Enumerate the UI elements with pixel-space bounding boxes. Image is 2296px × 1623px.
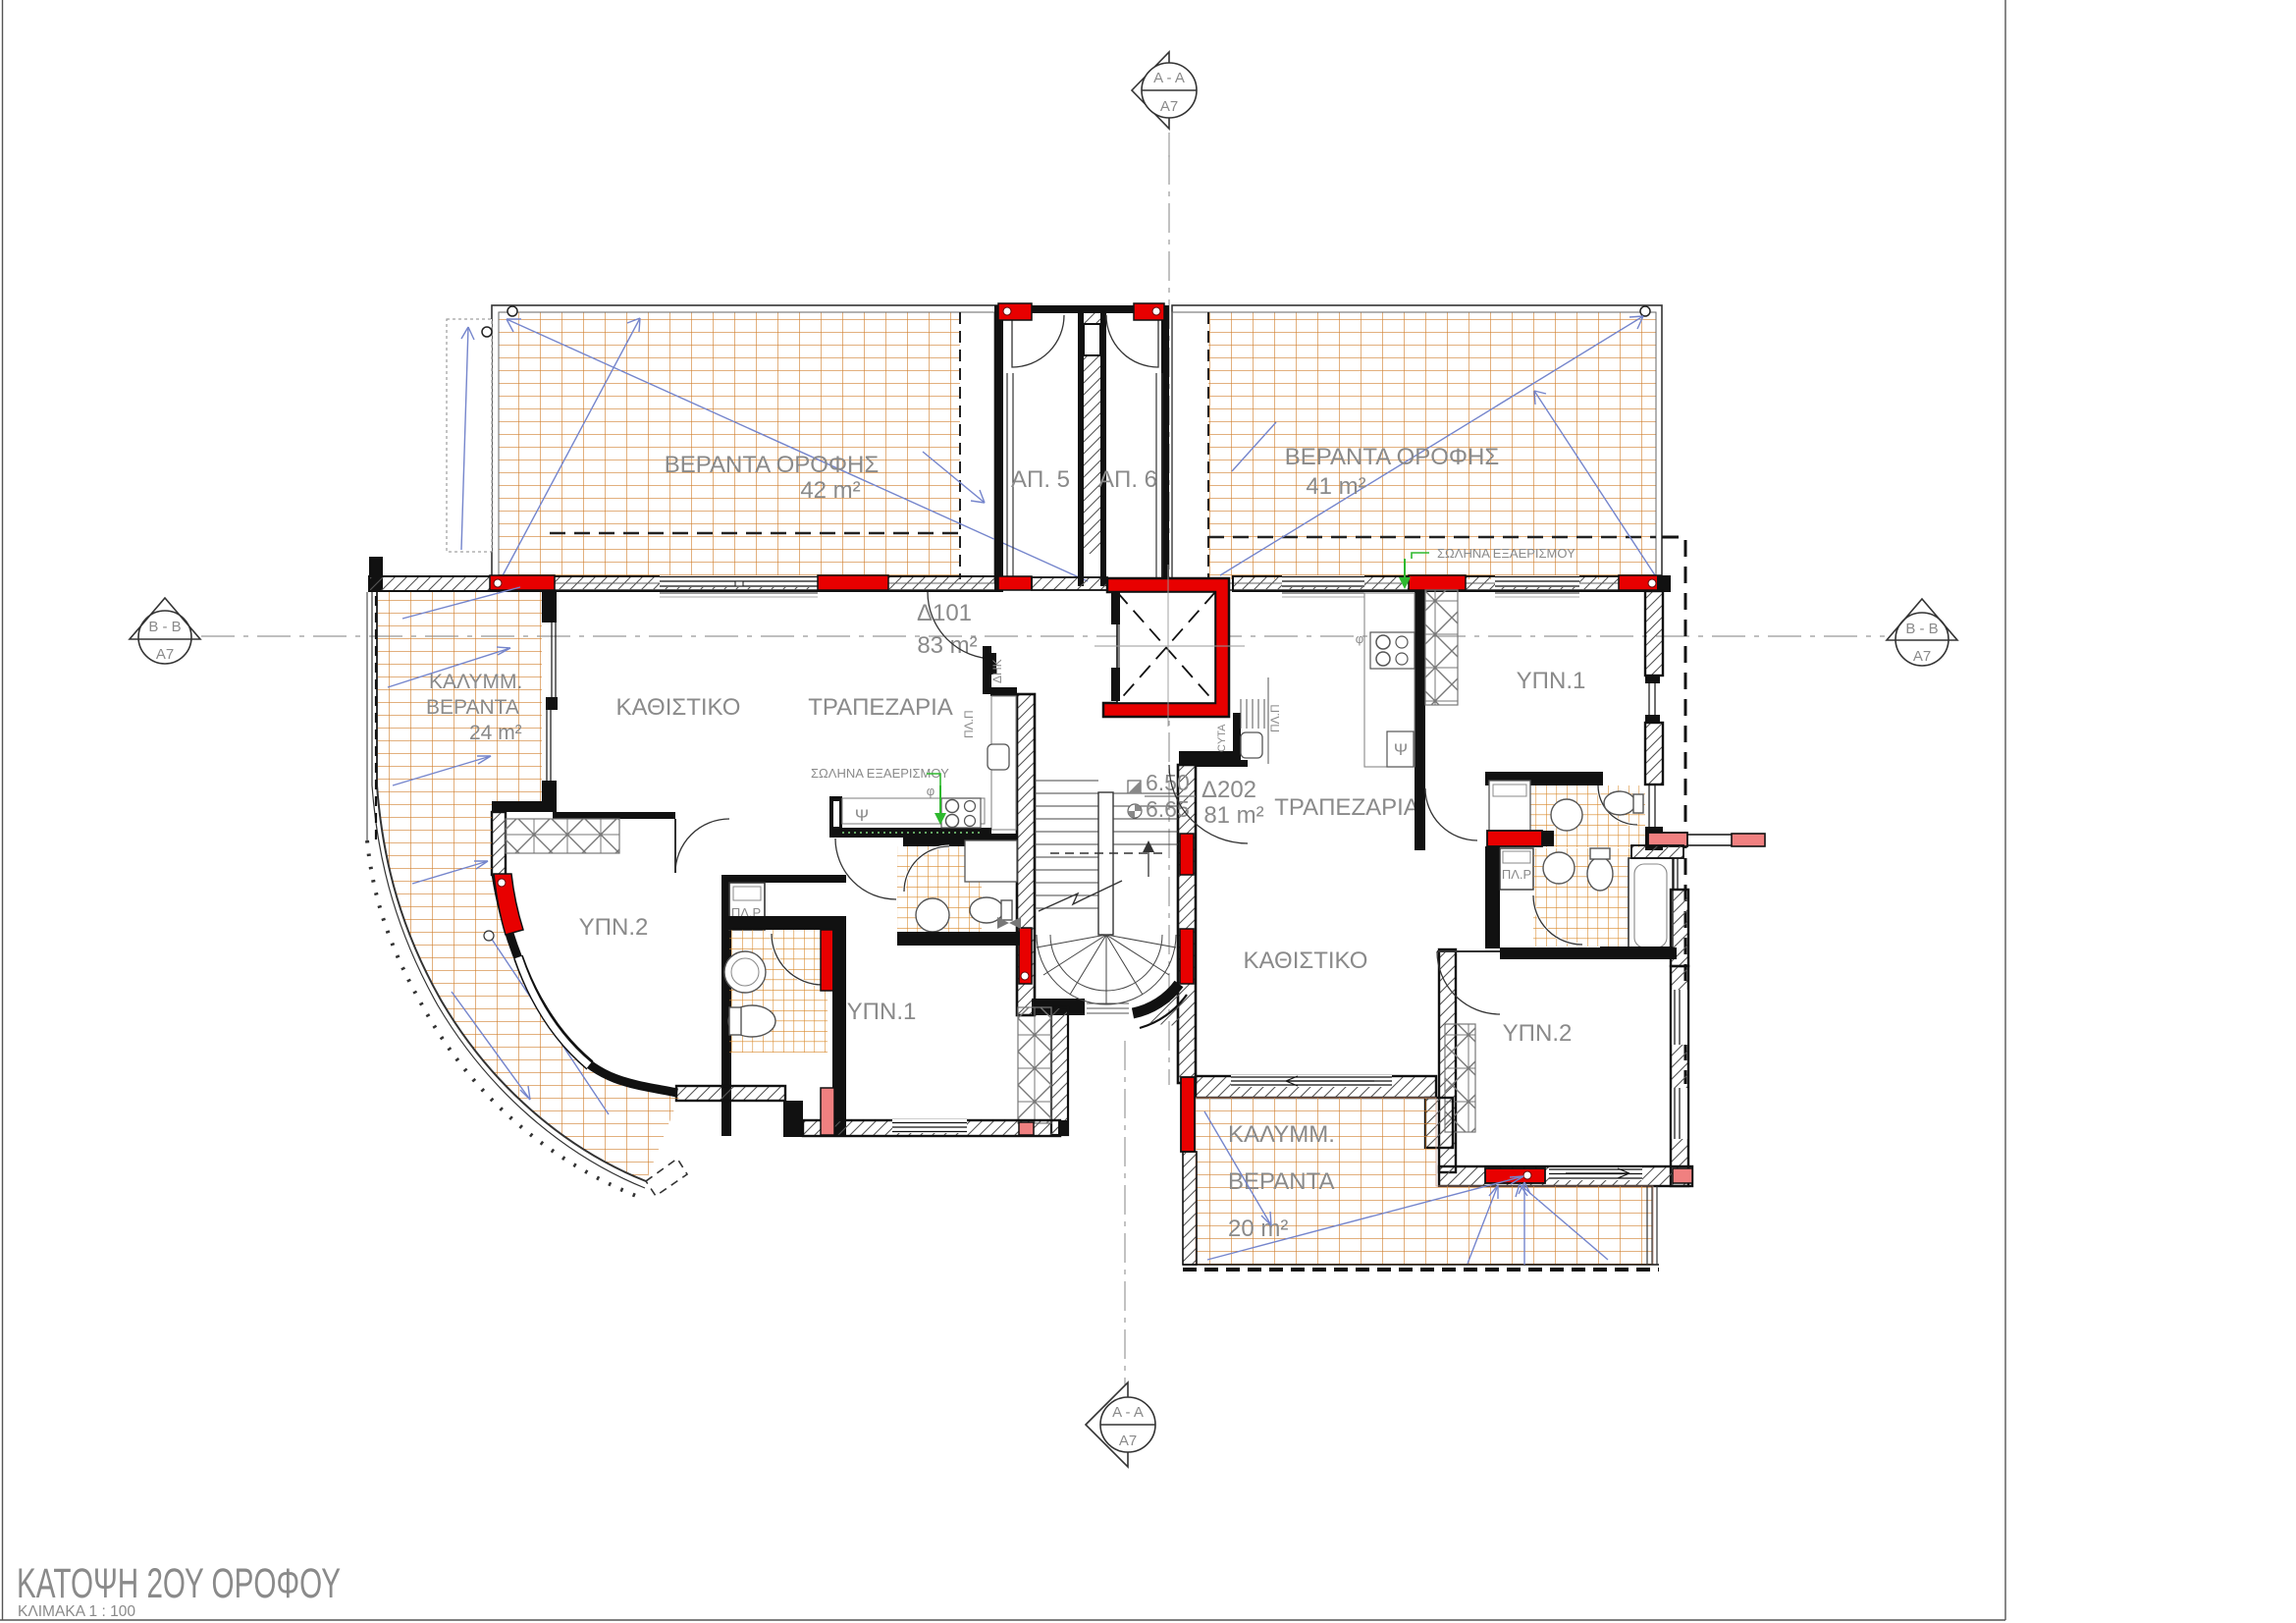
svg-text:83 m²: 83 m² <box>917 632 977 659</box>
svg-text:A - A: A - A <box>1112 1404 1144 1421</box>
svg-text:81 m²: 81 m² <box>1203 802 1263 829</box>
svg-text:ΚΑΛΥΜΜ.: ΚΑΛΥΜΜ. <box>1228 1121 1335 1148</box>
svg-text:Δ202: Δ202 <box>1201 777 1256 803</box>
svg-text:ΠΛ.Π: ΠΛ.Π <box>1268 704 1282 732</box>
svg-text:A7: A7 <box>156 646 174 663</box>
svg-text:ΚΑΛΥΜΜ.: ΚΑΛΥΜΜ. <box>429 671 522 693</box>
svg-text:ΚΛΙΜΑΚΑ 1 : 100: ΚΛΙΜΑΚΑ 1 : 100 <box>18 1603 135 1620</box>
svg-text:B - B: B - B <box>148 619 181 635</box>
svg-text:ΣΩΛΗΝΑ ΕΞΑΕΡΙΣΜΟΥ: ΣΩΛΗΝΑ ΕΞΑΕΡΙΣΜΟΥ <box>1437 546 1575 561</box>
svg-text:ΒΕΡΑΝΤΑ: ΒΕΡΑΝΤΑ <box>426 696 519 719</box>
svg-text:ΚΑΘΙΣΤΙΚΟ: ΚΑΘΙΣΤΙΚΟ <box>1244 947 1368 974</box>
svg-text:A - A: A - A <box>1153 70 1185 86</box>
svg-text:41 m²: 41 m² <box>1306 473 1365 500</box>
svg-text:CYTA: CYTA <box>1216 724 1228 752</box>
svg-text:ΚΑΘΙΣΤΙΚΟ: ΚΑΘΙΣΤΙΚΟ <box>616 694 741 721</box>
svg-text:A7: A7 <box>1119 1433 1137 1449</box>
svg-text:ΚΑΤΟΨΗ 2ΟΥ ΟΡΟΦΟΥ: ΚΑΤΟΨΗ 2ΟΥ ΟΡΟΦΟΥ <box>17 1560 341 1607</box>
svg-text:A7: A7 <box>1160 98 1178 115</box>
svg-text:ΒΕΡΑΝΤΑ ΟΡΟΦΗΣ: ΒΕΡΑΝΤΑ ΟΡΟΦΗΣ <box>1285 444 1499 470</box>
svg-text:ΒΕΡΑΝΤΑ: ΒΕΡΑΝΤΑ <box>1228 1168 1334 1195</box>
svg-text:ΤΡΑΠΕΖΑΡΙΑ: ΤΡΑΠΕΖΑΡΙΑ <box>1274 794 1419 821</box>
svg-text:Δ101: Δ101 <box>917 600 972 626</box>
svg-text:ΑΠ. 5: ΑΠ. 5 <box>1011 466 1070 493</box>
svg-text:ΠΛ.Ρ: ΠΛ.Ρ <box>1502 867 1531 882</box>
svg-text:24 m²: 24 m² <box>469 722 522 744</box>
svg-text:42 m²: 42 m² <box>800 477 860 504</box>
svg-text:ΠΛ.Π: ΠΛ.Π <box>962 710 976 738</box>
svg-text:ΔΗΚ: ΔΗΚ <box>990 659 1004 683</box>
svg-text:ΥΠΝ.2: ΥΠΝ.2 <box>1503 1020 1573 1047</box>
svg-text:ΤΡΑΠΕΖΑΡΙΑ: ΤΡΑΠΕΖΑΡΙΑ <box>808 694 953 721</box>
svg-text:φ: φ <box>927 784 934 798</box>
svg-text:ΥΠΝ.1: ΥΠΝ.1 <box>1517 668 1586 694</box>
svg-text:ΑΠ. 6: ΑΠ. 6 <box>1098 466 1157 493</box>
svg-text:ΥΠΝ.2: ΥΠΝ.2 <box>579 914 649 941</box>
svg-text:6.50: 6.50 <box>1146 770 1190 795</box>
svg-text:Ψ: Ψ <box>855 806 869 825</box>
svg-text:ΒΕΡΑΝΤΑ ΟΡΟΦΗΣ: ΒΕΡΑΝΤΑ ΟΡΟΦΗΣ <box>665 452 879 478</box>
svg-text:Ψ: Ψ <box>1394 740 1408 759</box>
svg-text:20 m²: 20 m² <box>1228 1216 1288 1242</box>
svg-text:φ: φ <box>1356 631 1363 646</box>
svg-text:ΥΠΝ.1: ΥΠΝ.1 <box>847 999 917 1025</box>
svg-text:A7: A7 <box>1913 648 1931 665</box>
svg-text:B - B: B - B <box>1905 621 1938 637</box>
